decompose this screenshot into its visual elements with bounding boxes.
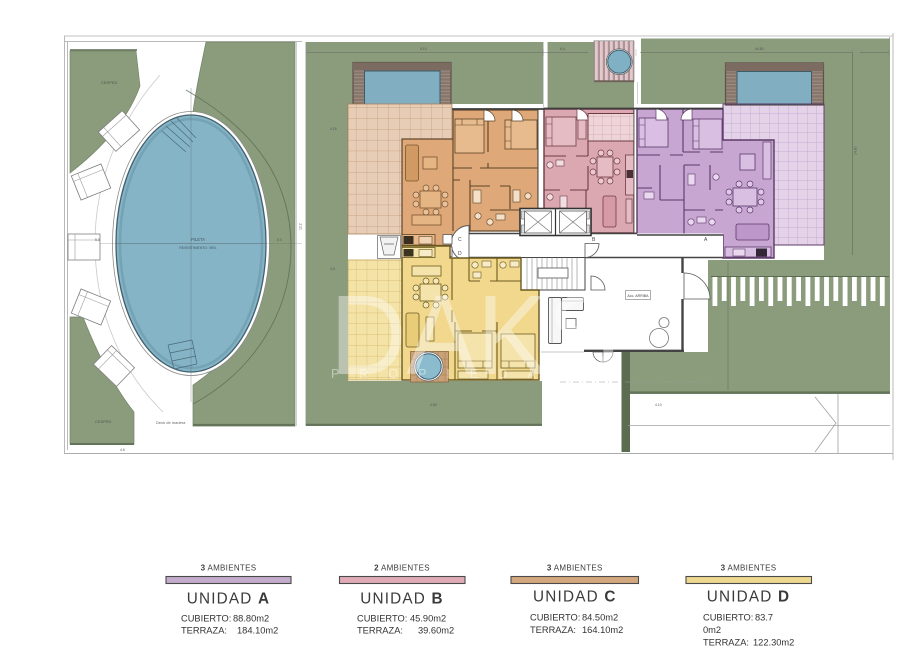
svg-text:PILETA: PILETA (191, 237, 205, 242)
svg-text:CUBIERTO:: CUBIERTO: (530, 613, 580, 623)
svg-text:TERRAZA:: TERRAZA: (530, 625, 576, 635)
svg-text:44.50: 44.50 (755, 47, 764, 51)
svg-text:TERRAZA:: TERRAZA: (357, 626, 403, 636)
svg-text:CUBIERTO:: CUBIERTO: (181, 614, 231, 624)
svg-text:Acc. ARRIBA: Acc. ARRIBA (627, 294, 649, 298)
svg-text:UNIDAD A: UNIDAD A (187, 591, 271, 608)
svg-text:C: C (458, 237, 462, 243)
svg-text:83.7: 83.7 (755, 613, 773, 623)
svg-text:6.4: 6.4 (560, 47, 565, 51)
svg-text:88.80m2: 88.80m2 (233, 614, 269, 624)
svg-text:3 AMBIENTES: 3 AMBIENTES (201, 564, 257, 573)
svg-text:9.10: 9.10 (420, 47, 427, 51)
svg-text:CESPED: CESPED (95, 419, 112, 424)
svg-text:39.60m2: 39.60m2 (418, 626, 454, 636)
svg-text:4.5: 4.5 (330, 267, 335, 271)
svg-text:TERRAZA:: TERRAZA: (181, 626, 227, 636)
svg-text:3 AMBIENTES: 3 AMBIENTES (721, 564, 777, 573)
svg-text:TERRAZA:: TERRAZA: (703, 638, 749, 648)
svg-text:84.50m2: 84.50m2 (582, 613, 618, 623)
svg-text:5.0: 5.0 (95, 238, 100, 242)
svg-text:12.2: 12.2 (299, 223, 303, 230)
svg-text:UNIDAD D: UNIDAD D (707, 589, 791, 606)
svg-text:REVESTIMIENTO: VEN.: REVESTIMIENTO: VEN. (179, 246, 216, 250)
svg-text:5.0: 5.0 (277, 238, 282, 242)
svg-text:UNIDAD B: UNIDAD B (360, 591, 444, 608)
svg-text:3 AMBIENTES: 3 AMBIENTES (547, 564, 603, 573)
svg-text:CUBIERTO:: CUBIERTO: (703, 613, 753, 623)
svg-text:45.90m2: 45.90m2 (410, 614, 446, 624)
svg-text:4.15: 4.15 (330, 127, 337, 131)
svg-text:14.80: 14.80 (854, 146, 858, 155)
svg-text:CUBIERTO:: CUBIERTO: (357, 614, 407, 624)
svg-text:184.10m2: 184.10m2 (237, 626, 278, 636)
svg-text:4.10: 4.10 (655, 403, 662, 407)
svg-text:2 AMBIENTES: 2 AMBIENTES (374, 564, 430, 573)
svg-text:4.6: 4.6 (120, 448, 125, 452)
svg-text:PROPIEDADES: PROPIEDADES (331, 367, 641, 381)
svg-text:164.10m2: 164.10m2 (582, 625, 623, 635)
svg-text:D: D (458, 251, 462, 257)
svg-text:UNIDAD C: UNIDAD C (533, 589, 617, 606)
svg-text:4.83: 4.83 (430, 403, 437, 407)
svg-text:Deck de madera: Deck de madera (156, 420, 186, 425)
svg-text:122.30m2: 122.30m2 (753, 638, 794, 648)
svg-text:CESPED: CESPED (101, 80, 118, 85)
svg-text:0m2: 0m2 (703, 625, 721, 635)
